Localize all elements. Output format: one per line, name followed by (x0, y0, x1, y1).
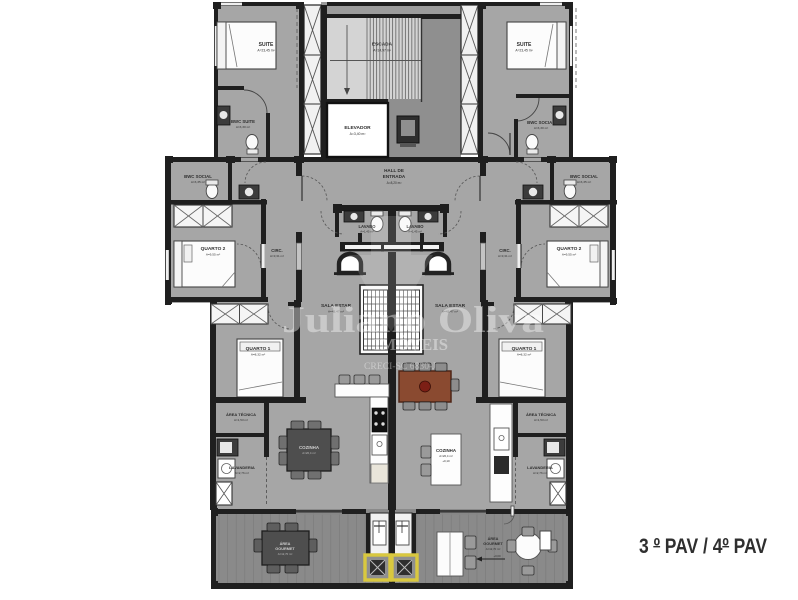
svg-text:QUARTO 2: QUARTO 2 (557, 246, 582, 252)
svg-text:A=9,55 m²: A=9,55 m² (562, 253, 576, 257)
svg-text:BWC SOCIAL: BWC SOCIAL (527, 120, 555, 125)
svg-text:QUARTO 2: QUARTO 2 (201, 246, 226, 252)
svg-text:ÁREA: ÁREA (488, 536, 499, 541)
svg-text:GOURMET: GOURMET (483, 542, 503, 546)
svg-text:BWC SOCIAL: BWC SOCIAL (570, 174, 598, 179)
svg-text:A=14,97 m²: A=14,97 m² (373, 49, 391, 53)
svg-text:A=1,53 m²: A=1,53 m² (234, 418, 248, 422)
svg-text:+0,10: +0,10 (442, 459, 450, 463)
svg-text:A=3,40 m²: A=3,40 m² (350, 132, 367, 136)
svg-text:QUARTO 1: QUARTO 1 (512, 346, 537, 352)
svg-text:CIRC.: CIRC. (499, 248, 510, 253)
svg-text:COZINHA: COZINHA (299, 445, 320, 450)
svg-text:A=3,31 m²: A=3,31 m² (270, 254, 284, 258)
svg-text:A=1,53 m²: A=1,53 m² (534, 418, 548, 422)
svg-text:CIRC.: CIRC. (271, 248, 282, 253)
svg-text:+0,00: +0,00 (493, 554, 501, 558)
svg-text:ÁREA TÉCNICA: ÁREA TÉCNICA (226, 412, 256, 417)
svg-text:A=2,76 m²: A=2,76 m² (235, 471, 249, 475)
svg-text:COZINHA: COZINHA (436, 448, 457, 453)
svg-text:A=20,4 m²: A=20,4 m² (439, 454, 452, 458)
svg-text:HALL DE: HALL DE (384, 168, 404, 173)
svg-text:A=3,31 m²: A=3,31 m² (498, 254, 512, 258)
svg-text:A=8,32 m²: A=8,32 m² (251, 353, 265, 357)
svg-text:ÁREA: ÁREA (280, 541, 291, 546)
svg-text:BWC SUITE: BWC SUITE (231, 119, 255, 124)
svg-text:QUARTO 1: QUARTO 1 (246, 346, 271, 352)
svg-text:A=12,70 m²: A=12,70 m² (278, 552, 293, 556)
svg-text:A=3,30 m²: A=3,30 m² (236, 125, 250, 129)
svg-text:SUITE: SUITE (517, 42, 532, 48)
svg-text:ELEVADOR: ELEVADOR (344, 125, 371, 131)
svg-text:GOURMET: GOURMET (275, 547, 295, 551)
svg-text:A=3,35 m²: A=3,35 m² (577, 180, 591, 184)
svg-text:BWC SOCIAL: BWC SOCIAL (184, 174, 212, 179)
svg-text:CRECI-SC 6830-J: CRECI-SC 6830-J (364, 361, 437, 371)
svg-text:SUITE: SUITE (259, 42, 274, 48)
svg-text:A=3,35 m²: A=3,35 m² (191, 180, 205, 184)
svg-text:ESCADA: ESCADA (372, 42, 393, 48)
svg-text:A=23,45 m²: A=23,45 m² (257, 49, 275, 53)
svg-text:A=3,30 m²: A=3,30 m² (534, 126, 548, 130)
svg-text:A=23,45 m²: A=23,45 m² (515, 49, 533, 53)
svg-text:LAVANDERIA: LAVANDERIA (229, 465, 255, 470)
svg-text:LAVANDERIA: LAVANDERIA (527, 465, 553, 470)
svg-text:A=12,70 m²: A=12,70 m² (486, 547, 501, 551)
svg-text:ENTRADA: ENTRADA (383, 174, 406, 179)
svg-text:A=2,76 m²: A=2,76 m² (533, 471, 547, 475)
svg-text:A=20,4 m²: A=20,4 m² (302, 451, 315, 455)
svg-text:A=8,32 m²: A=8,32 m² (517, 353, 531, 357)
svg-text:IMÓVEIS: IMÓVEIS (374, 335, 448, 354)
svg-text:ÁREA TÉCNICA: ÁREA TÉCNICA (526, 412, 556, 417)
svg-text:A=8,20 m²: A=8,20 m² (387, 181, 402, 185)
svg-text:A=9,55 m²: A=9,55 m² (206, 253, 220, 257)
